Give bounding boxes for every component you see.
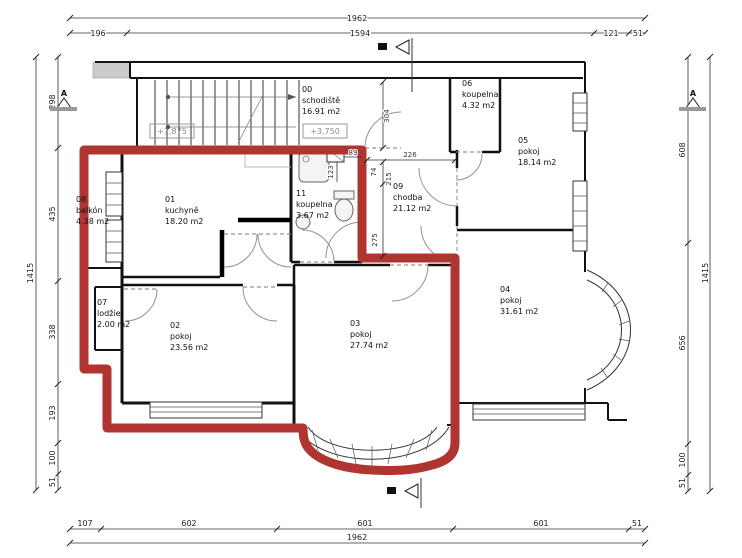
dimension-chain-bottom: 107 602 601 601 51 1962 — [67, 519, 648, 546]
svg-text:08: 08 — [76, 195, 86, 204]
room04-window — [473, 404, 585, 420]
dim-304: 304 — [383, 109, 391, 123]
section-markers: A A — [50, 38, 706, 508]
svg-text:chodba: chodba — [393, 193, 423, 202]
svg-text:lodžie: lodžie — [97, 309, 121, 318]
dim-right-seg-100: 100 — [678, 452, 687, 467]
room-label-03: 03pokoj27.74 m2 — [350, 319, 388, 350]
room-label-11: 11koupelna3.67 m2 — [296, 189, 333, 220]
room-label-05: 05pokoj18.14 m2 — [518, 136, 556, 167]
dim-bottom-seg-107: 107 — [77, 519, 92, 528]
toilet-tank — [334, 191, 354, 199]
door-room05 — [419, 168, 457, 206]
svg-text:schodiště: schodiště — [302, 95, 340, 105]
svg-text:27.74 m2: 27.74 m2 — [350, 341, 388, 350]
svg-text:21.12 m2: 21.12 m2 — [393, 204, 431, 213]
svg-text:18.14 m2: 18.14 m2 — [518, 158, 556, 167]
svg-text:koupelna: koupelna — [462, 90, 499, 99]
svg-text:A: A — [690, 89, 697, 98]
stair-run-start-dot — [166, 95, 170, 99]
dim-right-seg-608: 608 — [678, 142, 687, 157]
dim-top-seg-196: 196 — [90, 29, 105, 38]
room-label-07: 07lodžie2.00 m2 — [97, 298, 130, 329]
dim-89: 89 — [349, 149, 358, 157]
svg-text:pokoj: pokoj — [500, 296, 521, 305]
svg-text:04: 04 — [500, 285, 510, 294]
svg-text:02: 02 — [170, 321, 180, 330]
door-loggia — [125, 289, 157, 321]
door-bath06 — [456, 154, 482, 180]
dim-right-seg-51: 51 — [678, 478, 687, 488]
dim-left-overall: 1415 — [26, 263, 35, 283]
dim-275: 275 — [371, 233, 379, 246]
svg-text:A: A — [61, 89, 68, 98]
svg-text:balkón: balkón — [76, 205, 103, 215]
door-apartment-entrance — [326, 222, 362, 258]
svg-text:2.00 m2: 2.00 m2 — [97, 320, 130, 329]
dim-bottom-seg-601a: 601 — [357, 519, 372, 528]
adjacent-building-stub — [93, 62, 130, 78]
svg-text:23.56 m2: 23.56 m2 — [170, 343, 208, 352]
stair-direction-arrowhead — [288, 94, 296, 100]
dim-left-seg-51: 51 — [48, 477, 57, 487]
dim-bottom-seg-51: 51 — [632, 519, 642, 528]
room-label-01: 01kuchyně18.20 m2 — [165, 195, 203, 226]
dim-74: 74 — [370, 167, 378, 176]
svg-text:18.20 m2: 18.20 m2 — [165, 217, 203, 226]
svg-text:05: 05 — [518, 136, 528, 145]
dim-top-overall: 1962 — [347, 14, 367, 23]
svg-text:09: 09 — [393, 182, 403, 191]
svg-text:4.32 m2: 4.32 m2 — [462, 101, 495, 110]
svg-text:16.91 m2: 16.91 m2 — [302, 107, 340, 116]
room-label-00: 00schodiště16.91 m2 — [302, 85, 340, 116]
room-label-02: 02pokoj23.56 m2 — [170, 321, 208, 352]
svg-text:06: 06 — [462, 79, 472, 88]
dim-left-seg-193: 193 — [48, 405, 57, 420]
dimension-chain-left: 1415 298 435 338 193 100 51 — [26, 54, 61, 493]
svg-text:07: 07 — [97, 298, 107, 307]
dim-left-seg-338: 338 — [48, 324, 57, 339]
door-kitchen-right — [258, 234, 291, 267]
svg-text:pokoj: pokoj — [170, 332, 191, 341]
svg-text:03: 03 — [350, 319, 360, 328]
svg-text:00: 00 — [302, 85, 312, 94]
dim-top-seg-121: 121 — [603, 29, 618, 38]
svg-text:4.38 m2: 4.38 m2 — [76, 217, 109, 226]
svg-text:koupelna: koupelna — [296, 200, 333, 209]
dimension-chain-right: 608 656 100 51 1415 — [678, 54, 713, 494]
dim-top-seg-1594: 1594 — [350, 29, 370, 38]
dim-bottom-seg-602: 602 — [181, 519, 196, 528]
room-label-06: 06koupelna4.32 m2 — [462, 79, 499, 110]
dim-top-seg-51: 51 — [633, 29, 643, 38]
room-label-08: 08balkón4.38 m2 — [76, 195, 109, 226]
door-room03 — [392, 265, 428, 301]
elevation-lower: +1,875 — [157, 127, 187, 136]
dim-215: 215 — [385, 172, 393, 185]
svg-text:kuchyně: kuchyně — [165, 206, 199, 215]
interior-dimensions: 304 226 74 215 275 89 123 — [327, 79, 458, 259]
door-bath11 — [302, 230, 334, 262]
room-label-04: 04pokoj31.61 m2 — [500, 285, 538, 316]
dimension-chain-top: 1962 196 1594 121 51 — [67, 14, 648, 38]
svg-text:31.61 m2: 31.61 m2 — [500, 307, 538, 316]
room-label-09: 09chodba21.12 m2 — [393, 182, 431, 213]
room04-bay-window — [587, 270, 631, 390]
floor-plan-canvas: 1962 196 1594 121 51 107 602 601 601 51 … — [0, 0, 742, 558]
elevation-upper: +3,750 — [310, 127, 340, 136]
svg-text:01: 01 — [165, 195, 175, 204]
svg-text:11: 11 — [296, 189, 306, 198]
dim-right-seg-656: 656 — [678, 335, 687, 350]
section-marker-a-right: A — [679, 89, 706, 111]
dim-right-overall: 1415 — [701, 263, 710, 283]
room02-window — [150, 402, 262, 418]
floor-plan-page: 1962 196 1594 121 51 107 602 601 601 51 … — [0, 0, 742, 558]
elevation-labels: +1,875 +3,750 — [150, 124, 347, 138]
dim-bottom-overall: 1962 — [347, 533, 367, 542]
shower-tray — [299, 152, 329, 182]
toilet-bowl — [335, 199, 353, 221]
dim-226: 226 — [403, 151, 417, 159]
svg-text:pokoj: pokoj — [350, 330, 371, 339]
dim-123: 123 — [327, 165, 335, 178]
section-marker-b-bottom — [387, 478, 421, 508]
door-kitchen-left — [224, 234, 257, 267]
svg-text:pokoj: pokoj — [518, 147, 539, 156]
dim-bottom-seg-601b: 601 — [533, 519, 548, 528]
dim-left-seg-100: 100 — [48, 450, 57, 465]
door-room02 — [243, 287, 277, 321]
dim-left-seg-435: 435 — [48, 206, 57, 221]
svg-text:3.67 m2: 3.67 m2 — [296, 211, 329, 220]
